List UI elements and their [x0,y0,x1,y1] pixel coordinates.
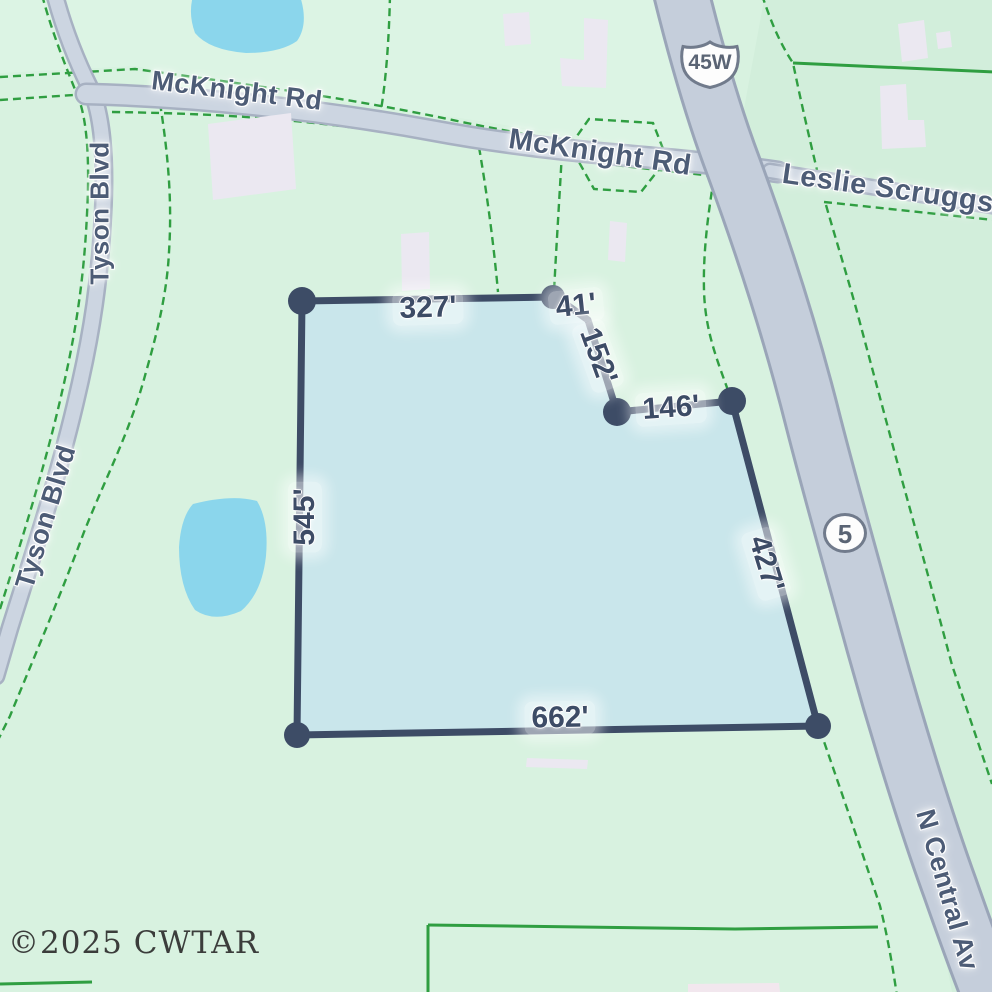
dimension-label-upper-right: 146' [634,389,707,428]
us-route-45w-label: 45W [679,43,741,83]
parcel-corner-dot [805,713,831,739]
parcel-map: McKnight Rd McKnight Rd Leslie Scruggs T… [0,0,992,992]
building-footprint [608,221,627,262]
parcel-corner-dot [284,722,310,748]
parcel-corner-dot [288,287,316,315]
dimension-label-top: 327' [392,290,464,326]
building-footprint [688,983,780,992]
us-route-45w-shield: 45W [679,39,741,89]
pond-west [179,498,267,617]
dimension-label-left: 545' [288,481,322,552]
building-footprint [526,758,588,769]
building-footprint [898,20,928,62]
parcel-corner-dot [718,387,746,415]
building-footprint [401,232,430,291]
road-label-tyson-1: Tyson Blvd [85,141,116,284]
boundary-bottom-horizontal [428,925,878,929]
watermark: ©2025 CWTAR [8,925,259,961]
map-canvas [0,0,992,992]
subject-parcel-polygon [297,297,818,735]
boundary-to-parcel-top-1 [479,147,498,292]
building-footprint [208,113,296,200]
subject-parcel [284,285,831,748]
dimension-label-bottom: 662' [524,700,596,735]
boundary-to-parcel-top-2 [554,152,562,292]
parcel-corner-dot [603,398,631,426]
state-route-5-shield: 5 [823,513,867,553]
boundary-bottom-left [0,982,92,984]
building-footprint [503,12,531,46]
building-footprint [936,31,952,49]
